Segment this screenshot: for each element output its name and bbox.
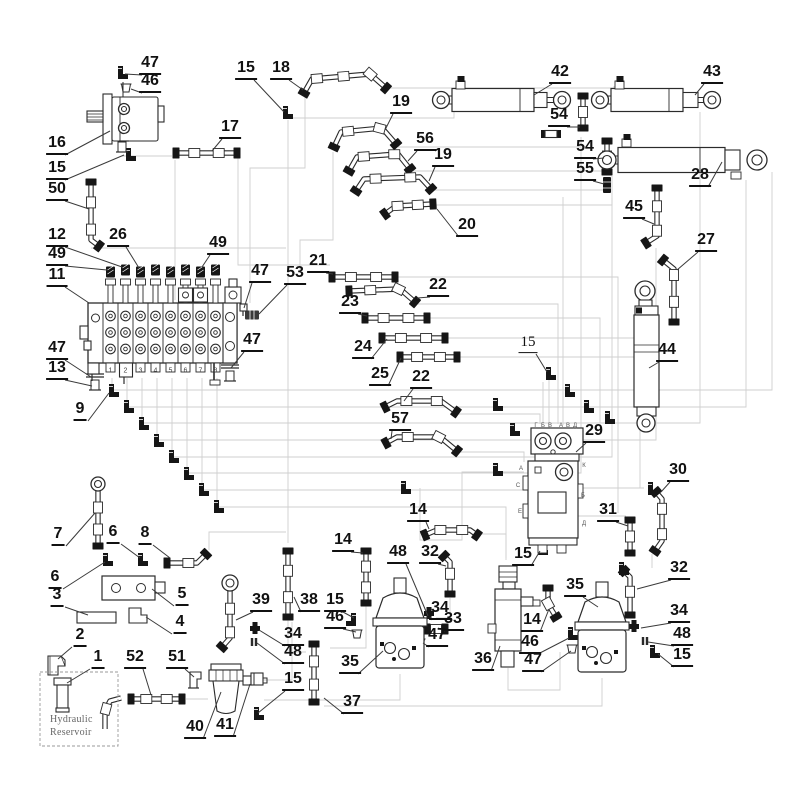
hose-54a xyxy=(578,93,589,132)
hose-37 xyxy=(309,641,320,706)
part-label-43: 43 xyxy=(701,64,723,84)
part-label-44: 44 xyxy=(656,342,678,362)
part-label-42: 42 xyxy=(549,64,571,84)
fitting-41 xyxy=(243,673,267,685)
hose-31 xyxy=(625,517,636,557)
hose-7 xyxy=(93,491,104,550)
elbow-fitting xyxy=(584,400,594,413)
elbow-fitting xyxy=(109,384,119,397)
part-label-48: 48 xyxy=(671,626,693,646)
hose-39-eye xyxy=(222,575,238,591)
bonnet-49 xyxy=(121,264,130,276)
part-label-4: 4 xyxy=(174,614,187,634)
hose-50 xyxy=(86,179,106,253)
washer-fitting xyxy=(251,638,257,646)
elbow-fitting xyxy=(214,500,224,513)
swivel-port-letter: С xyxy=(516,483,520,489)
swivel-port-letter: В xyxy=(548,423,552,429)
bonnet-49 xyxy=(181,264,190,276)
bonnet-49 xyxy=(166,266,175,278)
part-label-11: 11 xyxy=(47,267,68,287)
coupling-54 xyxy=(541,130,561,138)
hose-19a xyxy=(328,122,403,152)
part-label-22: 22 xyxy=(410,369,432,389)
part-label-8: 8 xyxy=(139,525,152,545)
part-label-15: 15 xyxy=(282,671,304,691)
part-label-17: 17 xyxy=(219,119,241,139)
part-label-5: 5 xyxy=(176,586,189,606)
part-label-7: 7 xyxy=(52,526,65,546)
part-label-15: 15 xyxy=(671,647,693,667)
tee-fitting xyxy=(629,620,639,632)
part-label-2: 2 xyxy=(74,627,87,647)
part-label-3: 3 xyxy=(51,587,64,607)
part-label-14: 14 xyxy=(332,532,354,552)
plug-fitting xyxy=(567,645,578,653)
part-label-1: 1 xyxy=(92,649,105,669)
hydraulic-parts-diagram: 4746161550171518195619204243545455284527… xyxy=(0,0,800,800)
part-label-32: 32 xyxy=(419,544,441,564)
spool-fitting-55 xyxy=(603,177,611,193)
elbow-fitting xyxy=(510,423,520,436)
part-label-38: 38 xyxy=(298,592,320,612)
part-label-28: 28 xyxy=(689,167,711,187)
hose-7-eye xyxy=(91,477,105,491)
bonnet-49 xyxy=(211,264,220,276)
hose-57 xyxy=(380,430,463,457)
part-label-26: 26 xyxy=(107,227,129,247)
swivel-port-letter: Д xyxy=(582,521,586,527)
part-label-46: 46 xyxy=(324,609,346,629)
motor-35-left xyxy=(373,578,427,668)
swivel-port-letter: Б xyxy=(541,423,545,429)
hose-24 xyxy=(379,333,449,344)
washer-fitting xyxy=(642,637,648,645)
hose-25 xyxy=(397,352,461,363)
part-label-41: 41 xyxy=(214,717,236,737)
swivel-port-letter: А xyxy=(559,423,563,429)
part-label-57: 57 xyxy=(389,411,411,431)
swivel-port-letter: Б xyxy=(581,493,585,499)
elbow-fitting xyxy=(199,483,209,496)
part-label-27: 27 xyxy=(695,232,717,252)
part-label-31: 31 xyxy=(597,502,619,522)
part-label-53: 53 xyxy=(284,265,306,285)
part-label-48: 48 xyxy=(282,644,304,664)
fitting-53 xyxy=(245,311,259,320)
elbow-fitting xyxy=(493,398,503,411)
part-label-18: 18 xyxy=(270,60,292,80)
bonnet-49 xyxy=(136,266,145,278)
part-label-52: 52 xyxy=(124,649,146,669)
hose-19b xyxy=(349,173,437,197)
plate-5 xyxy=(102,576,165,600)
swivel-port-letter: Г xyxy=(534,423,537,429)
part-label-40: 40 xyxy=(184,719,206,739)
hose-17 xyxy=(173,148,241,159)
hose-39 xyxy=(216,591,235,653)
part-label-39: 39 xyxy=(250,592,272,612)
part-label-50: 50 xyxy=(46,181,68,201)
tee-fitting xyxy=(250,622,260,634)
hose-23 xyxy=(362,313,431,324)
part-label-6: 6 xyxy=(107,524,120,544)
bracket-4 xyxy=(129,608,147,623)
part-label-47: 47 xyxy=(426,627,448,647)
hose-8 xyxy=(164,548,213,569)
hose-14c xyxy=(541,585,562,623)
hose-52 xyxy=(128,694,186,705)
hose-21 xyxy=(329,272,399,283)
hose-27 xyxy=(657,254,680,326)
valve-port-number: 3 xyxy=(139,368,143,375)
flange-fitting xyxy=(86,374,104,390)
elbow-fitting xyxy=(124,400,134,413)
elbow-fitting xyxy=(184,467,194,480)
part-label-20: 20 xyxy=(456,217,478,237)
elbow-fitting xyxy=(138,553,148,566)
valve-port-number: 7 xyxy=(199,368,203,375)
part-label-51: 51 xyxy=(166,649,188,669)
part-label-55: 55 xyxy=(574,161,596,181)
filter-40 xyxy=(209,664,243,714)
hose-18 xyxy=(297,67,392,99)
part-label-47: 47 xyxy=(522,652,544,672)
elbow-fitting xyxy=(103,553,113,566)
fitting-51 xyxy=(188,672,201,688)
hose-30 xyxy=(648,486,666,557)
plug-fitting xyxy=(121,84,132,92)
reservoir-label-line2: Reservoir xyxy=(50,727,92,738)
part-label-54: 54 xyxy=(548,107,570,127)
valve-port-number: 6 xyxy=(184,368,188,375)
part-label-49: 49 xyxy=(207,235,229,255)
part-label-48: 48 xyxy=(387,544,409,564)
part-label-35: 35 xyxy=(564,577,586,597)
part-label-47: 47 xyxy=(46,340,68,360)
elbow-fitting xyxy=(565,384,575,397)
part-label-15: 15 xyxy=(235,60,257,80)
elbow-fitting xyxy=(139,417,149,430)
part-label-45: 45 xyxy=(623,199,645,219)
part-label-14: 14 xyxy=(407,502,429,522)
reservoir-label-line1: Hydraulic xyxy=(50,714,93,725)
part-label-36: 36 xyxy=(472,651,494,671)
part-label-19: 19 xyxy=(432,147,454,167)
swivel-port-letter: В xyxy=(566,423,570,429)
part-label-23: 23 xyxy=(339,294,361,314)
part-label-13: 13 xyxy=(46,360,68,380)
elbow-fitting xyxy=(546,367,556,380)
elbow-fitting xyxy=(650,645,660,658)
hose-20 xyxy=(379,198,437,220)
part-label-46: 46 xyxy=(139,73,161,93)
valve-port-number: 2 xyxy=(124,368,128,375)
diagram-canvas xyxy=(0,0,800,800)
part-label-35: 35 xyxy=(339,654,361,674)
swivel-port-letter: К xyxy=(582,463,586,469)
part-label-37: 37 xyxy=(341,694,363,714)
bonnet-49 xyxy=(196,266,205,278)
suction-port-1 xyxy=(54,678,71,712)
valve-port-number: 1 xyxy=(109,368,113,375)
part-label-29: 29 xyxy=(583,423,605,443)
part-label-19: 19 xyxy=(390,94,412,114)
part-label-22: 22 xyxy=(427,277,449,297)
part-label-21: 21 xyxy=(307,253,329,273)
part-label-25: 25 xyxy=(369,366,391,386)
part-label-24: 24 xyxy=(352,339,374,359)
part-label-49: 49 xyxy=(46,246,68,266)
swivel-port-letter: Д xyxy=(573,423,577,429)
part-label-30: 30 xyxy=(667,462,689,482)
part-label-16: 16 xyxy=(46,135,68,155)
bonnet-49 xyxy=(106,266,115,278)
flange-fitting xyxy=(221,365,239,381)
swivel-port-letter: А xyxy=(519,466,523,472)
part-label-34: 34 xyxy=(668,603,690,623)
elbow-fitting xyxy=(169,450,179,463)
elbow-fitting xyxy=(118,66,128,79)
valve-port-number: 5 xyxy=(169,368,173,375)
swivel-29 xyxy=(523,428,583,553)
elbow-fitting xyxy=(154,434,164,447)
cylinder-28 xyxy=(598,134,767,179)
part-label-14: 14 xyxy=(521,612,543,632)
part-label-47: 47 xyxy=(241,332,263,352)
part-label-15: 15 xyxy=(512,546,534,566)
valve-port-number: 8 xyxy=(214,368,218,375)
bonnet-49 xyxy=(151,264,160,276)
elbow-fitting xyxy=(605,411,615,424)
part-label-47: 47 xyxy=(249,263,271,283)
part-label-15: 15 xyxy=(46,160,68,180)
elbow-fitting xyxy=(126,148,136,161)
part-label-15: 15 xyxy=(519,335,538,353)
part-label-12: 12 xyxy=(46,227,68,247)
swivel-port-letter: Е xyxy=(518,509,522,515)
valve-port-number: 4 xyxy=(154,368,158,375)
part-label-54: 54 xyxy=(574,139,596,159)
elbow-fitting xyxy=(493,463,503,476)
elbow-fitting xyxy=(283,106,293,119)
hose-38 xyxy=(283,548,294,621)
hose-14a xyxy=(420,526,483,542)
part-label-9: 9 xyxy=(74,401,87,421)
elbow-fitting xyxy=(401,481,411,494)
part-label-32: 32 xyxy=(668,560,690,580)
hose-14b xyxy=(361,548,372,607)
